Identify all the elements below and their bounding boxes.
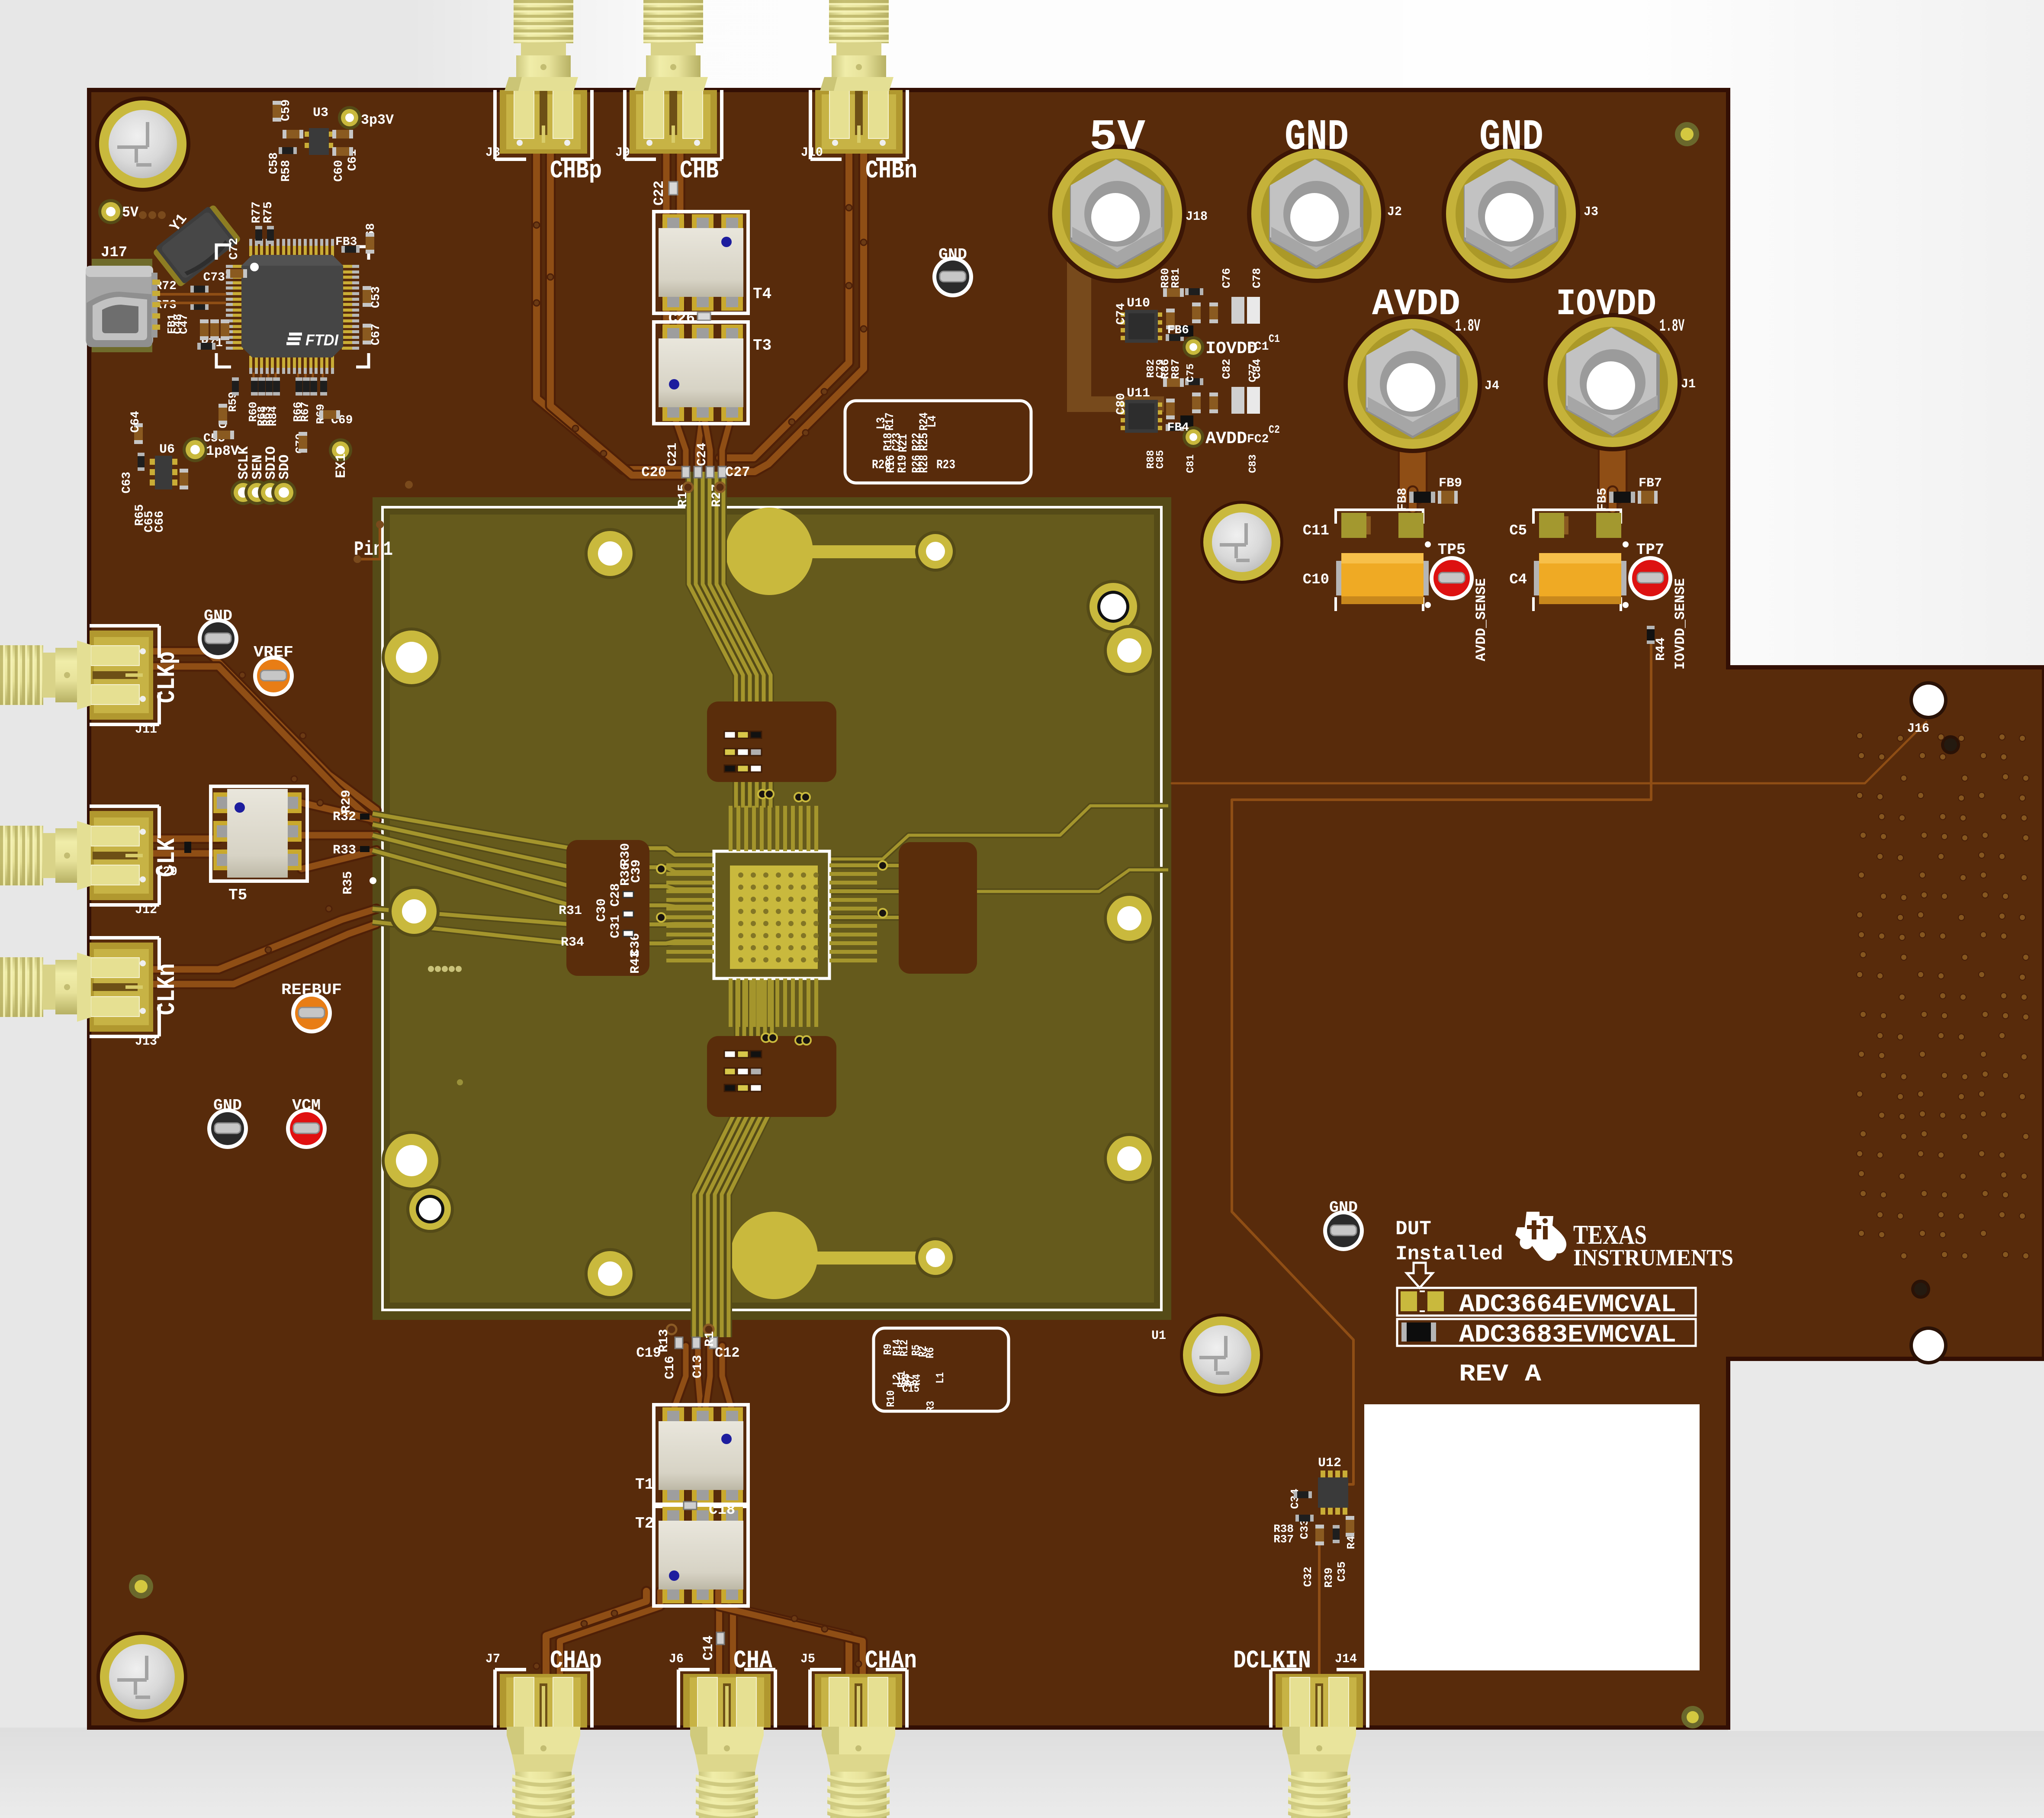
svg-text:AVDD: AVDD <box>1205 429 1247 449</box>
svg-text:C31: C31 <box>608 915 623 938</box>
svg-text:R28: R28 <box>918 455 931 473</box>
svg-text:DUT: DUT <box>1395 1218 1431 1240</box>
svg-text:J7: J7 <box>485 1652 500 1667</box>
svg-text:R81: R81 <box>1169 268 1182 288</box>
svg-text:R3: R3 <box>924 1401 937 1412</box>
svg-text:R43: R43 <box>628 950 643 974</box>
svg-text:C33: C33 <box>1298 1519 1311 1539</box>
svg-text:FC2: FC2 <box>1247 433 1269 446</box>
svg-text:IOVDD: IOVDD <box>1556 283 1656 325</box>
svg-text:R35: R35 <box>341 871 356 895</box>
svg-text:CHBn: CHBn <box>865 157 917 185</box>
svg-text:C11: C11 <box>1303 523 1329 539</box>
svg-text:C66: C66 <box>153 511 167 532</box>
svg-text:J17: J17 <box>101 245 127 261</box>
svg-text:AVDD_SENSE: AVDD_SENSE <box>1473 578 1489 661</box>
svg-text:GND: GND <box>938 246 967 264</box>
svg-text:ADC3664EVMCVAL: ADC3664EVMCVAL <box>1459 1291 1676 1319</box>
svg-text:C20: C20 <box>641 464 666 480</box>
svg-text:J18: J18 <box>1186 209 1208 224</box>
svg-text:C82: C82 <box>1220 359 1233 379</box>
svg-text:C12: C12 <box>715 1345 740 1361</box>
svg-text:C35: C35 <box>1335 1561 1348 1582</box>
svg-text:T5: T5 <box>228 886 247 904</box>
svg-text:C32: C32 <box>1302 1567 1314 1587</box>
svg-text:CHBp: CHBp <box>550 157 602 185</box>
svg-text:C1: C1 <box>1269 332 1280 345</box>
svg-text:C64: C64 <box>129 411 142 433</box>
svg-text:GND: GND <box>1479 113 1543 162</box>
svg-text:CHA: CHA <box>733 1647 772 1675</box>
svg-text:R25: R25 <box>918 433 931 451</box>
svg-text:R37: R37 <box>1273 1533 1294 1546</box>
svg-text:R10: R10 <box>884 1390 897 1407</box>
svg-text:R31: R31 <box>559 904 582 918</box>
svg-text:C85: C85 <box>1155 450 1167 469</box>
svg-text:R75: R75 <box>262 202 275 223</box>
svg-text:C18: C18 <box>709 1502 735 1519</box>
svg-text:C22: C22 <box>651 180 667 206</box>
svg-text:R44: R44 <box>1654 637 1668 661</box>
svg-text:C29: C29 <box>155 865 177 879</box>
svg-text:Installed: Installed <box>1395 1243 1503 1265</box>
svg-text:GND: GND <box>213 1097 242 1114</box>
svg-text:CHB: CHB <box>680 157 719 185</box>
svg-text:C15: C15 <box>902 1382 919 1395</box>
svg-text:C74: C74 <box>1115 303 1128 325</box>
svg-text:T4: T4 <box>753 285 771 303</box>
svg-text:FB4: FB4 <box>1167 421 1189 434</box>
svg-text:J4: J4 <box>1485 379 1499 393</box>
svg-text:R23: R23 <box>936 458 955 473</box>
svg-text:J6: J6 <box>669 1652 684 1667</box>
svg-text:R12: R12 <box>898 1340 911 1357</box>
svg-text:1.8V: 1.8V <box>1455 317 1480 336</box>
svg-text:CLKp: CLKp <box>154 651 182 703</box>
svg-text:IOVDD_SENSE: IOVDD_SENSE <box>1672 578 1688 669</box>
svg-text:C83: C83 <box>1247 454 1259 473</box>
svg-text:C2: C2 <box>1269 423 1280 436</box>
svg-text:R32: R32 <box>333 810 356 824</box>
svg-text:VREF: VREF <box>254 644 293 661</box>
svg-text:T3: T3 <box>753 337 771 354</box>
svg-text:R17: R17 <box>884 412 897 431</box>
svg-text:R19: R19 <box>896 455 910 473</box>
svg-text:C10: C10 <box>1303 572 1329 588</box>
svg-text:FTDI: FTDI <box>305 331 339 349</box>
svg-text:GND: GND <box>1329 1199 1358 1216</box>
svg-text:C76: C76 <box>1220 268 1233 288</box>
svg-text:C21: C21 <box>665 443 680 466</box>
svg-text:1.8V: 1.8V <box>1659 317 1684 336</box>
svg-text:C16: C16 <box>663 1356 678 1379</box>
svg-text:R1: R1 <box>703 1331 717 1347</box>
svg-text:C13: C13 <box>691 1355 705 1378</box>
svg-text:TP5: TP5 <box>1438 541 1466 559</box>
svg-text:U3: U3 <box>313 106 328 120</box>
svg-text:L4: L4 <box>926 415 939 428</box>
svg-text:C77: C77 <box>1247 364 1259 382</box>
svg-text:J11: J11 <box>135 722 157 737</box>
svg-text:ADC3683EVMCVAL: ADC3683EVMCVAL <box>1459 1321 1676 1349</box>
svg-text:R34: R34 <box>561 935 584 950</box>
svg-text:C79: C79 <box>1155 359 1167 378</box>
svg-text:C73: C73 <box>203 271 225 284</box>
svg-text:C59: C59 <box>280 100 293 121</box>
svg-text:1p8V: 1p8V <box>206 443 239 459</box>
svg-text:FB5: FB5 <box>1595 488 1610 511</box>
svg-text:3p3V: 3p3V <box>361 112 394 128</box>
svg-text:J2: J2 <box>1387 205 1402 219</box>
svg-text:FB8: FB8 <box>1395 488 1410 511</box>
svg-text:J8: J8 <box>485 145 500 160</box>
svg-text:SDO: SDO <box>276 454 292 479</box>
svg-text:C4: C4 <box>1509 572 1527 588</box>
svg-text:C60: C60 <box>332 160 346 182</box>
svg-text:R6: R6 <box>924 1347 937 1358</box>
svg-text:J10: J10 <box>801 145 823 160</box>
svg-text:C30: C30 <box>595 898 609 922</box>
svg-text:U12: U12 <box>1318 1456 1341 1470</box>
svg-text:C28: C28 <box>608 883 623 907</box>
svg-text:REFBUF: REFBUF <box>281 981 342 999</box>
svg-text:C27: C27 <box>725 464 750 480</box>
svg-text:5V: 5V <box>122 205 139 221</box>
svg-text:C53: C53 <box>370 286 383 308</box>
svg-text:R33: R33 <box>333 843 356 858</box>
svg-text:R58: R58 <box>280 160 293 182</box>
svg-text:C75: C75 <box>1185 364 1197 382</box>
svg-text:U11: U11 <box>1127 386 1150 401</box>
svg-text:DCLKIN: DCLKIN <box>1233 1647 1311 1675</box>
svg-text:T2: T2 <box>635 1515 654 1532</box>
svg-text:GND: GND <box>204 607 232 625</box>
svg-text:FB6: FB6 <box>1167 324 1189 337</box>
svg-text:C26: C26 <box>668 311 695 327</box>
svg-text:REV A: REV A <box>1459 1360 1541 1388</box>
svg-text:T1: T1 <box>635 1476 654 1493</box>
svg-text:C5: C5 <box>1509 523 1527 539</box>
svg-text:VCM: VCM <box>292 1097 321 1114</box>
svg-text:R21: R21 <box>897 434 910 452</box>
svg-text:C47: C47 <box>177 314 190 334</box>
svg-text:J16: J16 <box>1907 721 1929 736</box>
svg-text:R67: R67 <box>299 402 312 422</box>
svg-text:C39: C39 <box>629 859 644 883</box>
svg-text:INSTRUMENTS: INSTRUMENTS <box>1573 1245 1733 1271</box>
svg-text:EX1: EX1 <box>333 453 349 478</box>
svg-text:J3: J3 <box>1584 205 1598 219</box>
svg-text:L1: L1 <box>934 1372 947 1384</box>
svg-text:C81: C81 <box>1185 454 1197 473</box>
svg-text:FC1: FC1 <box>1247 340 1269 354</box>
svg-text:CLKn: CLKn <box>154 963 182 1015</box>
svg-text:TP7: TP7 <box>1636 541 1665 559</box>
svg-text:J5: J5 <box>800 1652 815 1667</box>
svg-text:U10: U10 <box>1127 296 1150 311</box>
svg-text:C80: C80 <box>1115 393 1128 415</box>
svg-text:J1: J1 <box>1681 377 1696 392</box>
svg-text:AVDD: AVDD <box>1372 283 1460 325</box>
svg-text:C19: C19 <box>636 1345 661 1361</box>
svg-text:J13: J13 <box>135 1034 157 1049</box>
svg-text:J12: J12 <box>135 903 157 917</box>
svg-text:J14: J14 <box>1335 1652 1357 1667</box>
svg-text:C14: C14 <box>701 1635 717 1660</box>
svg-text:R20: R20 <box>872 458 891 473</box>
svg-text:FB9: FB9 <box>1439 476 1462 491</box>
svg-text:GND: GND <box>1285 113 1349 162</box>
svg-text:FB7: FB7 <box>1639 476 1662 491</box>
svg-text:5V: 5V <box>1089 113 1145 162</box>
svg-text:C67: C67 <box>370 324 383 345</box>
svg-text:CHAp: CHAp <box>550 1647 602 1675</box>
svg-text:C58: C58 <box>267 152 281 174</box>
svg-text:C63: C63 <box>120 472 134 493</box>
svg-text:C72: C72 <box>228 238 241 260</box>
svg-text:C24: C24 <box>695 443 710 466</box>
svg-text:CHAn: CHAn <box>865 1647 917 1675</box>
svg-text:C78: C78 <box>1250 268 1263 288</box>
svg-text:R39: R39 <box>1322 1567 1335 1588</box>
svg-text:R87: R87 <box>1169 359 1182 379</box>
svg-text:R84: R84 <box>267 406 280 426</box>
svg-text:J9: J9 <box>615 145 630 160</box>
svg-text:U1: U1 <box>1151 1329 1166 1343</box>
svg-text:U6: U6 <box>159 442 175 457</box>
